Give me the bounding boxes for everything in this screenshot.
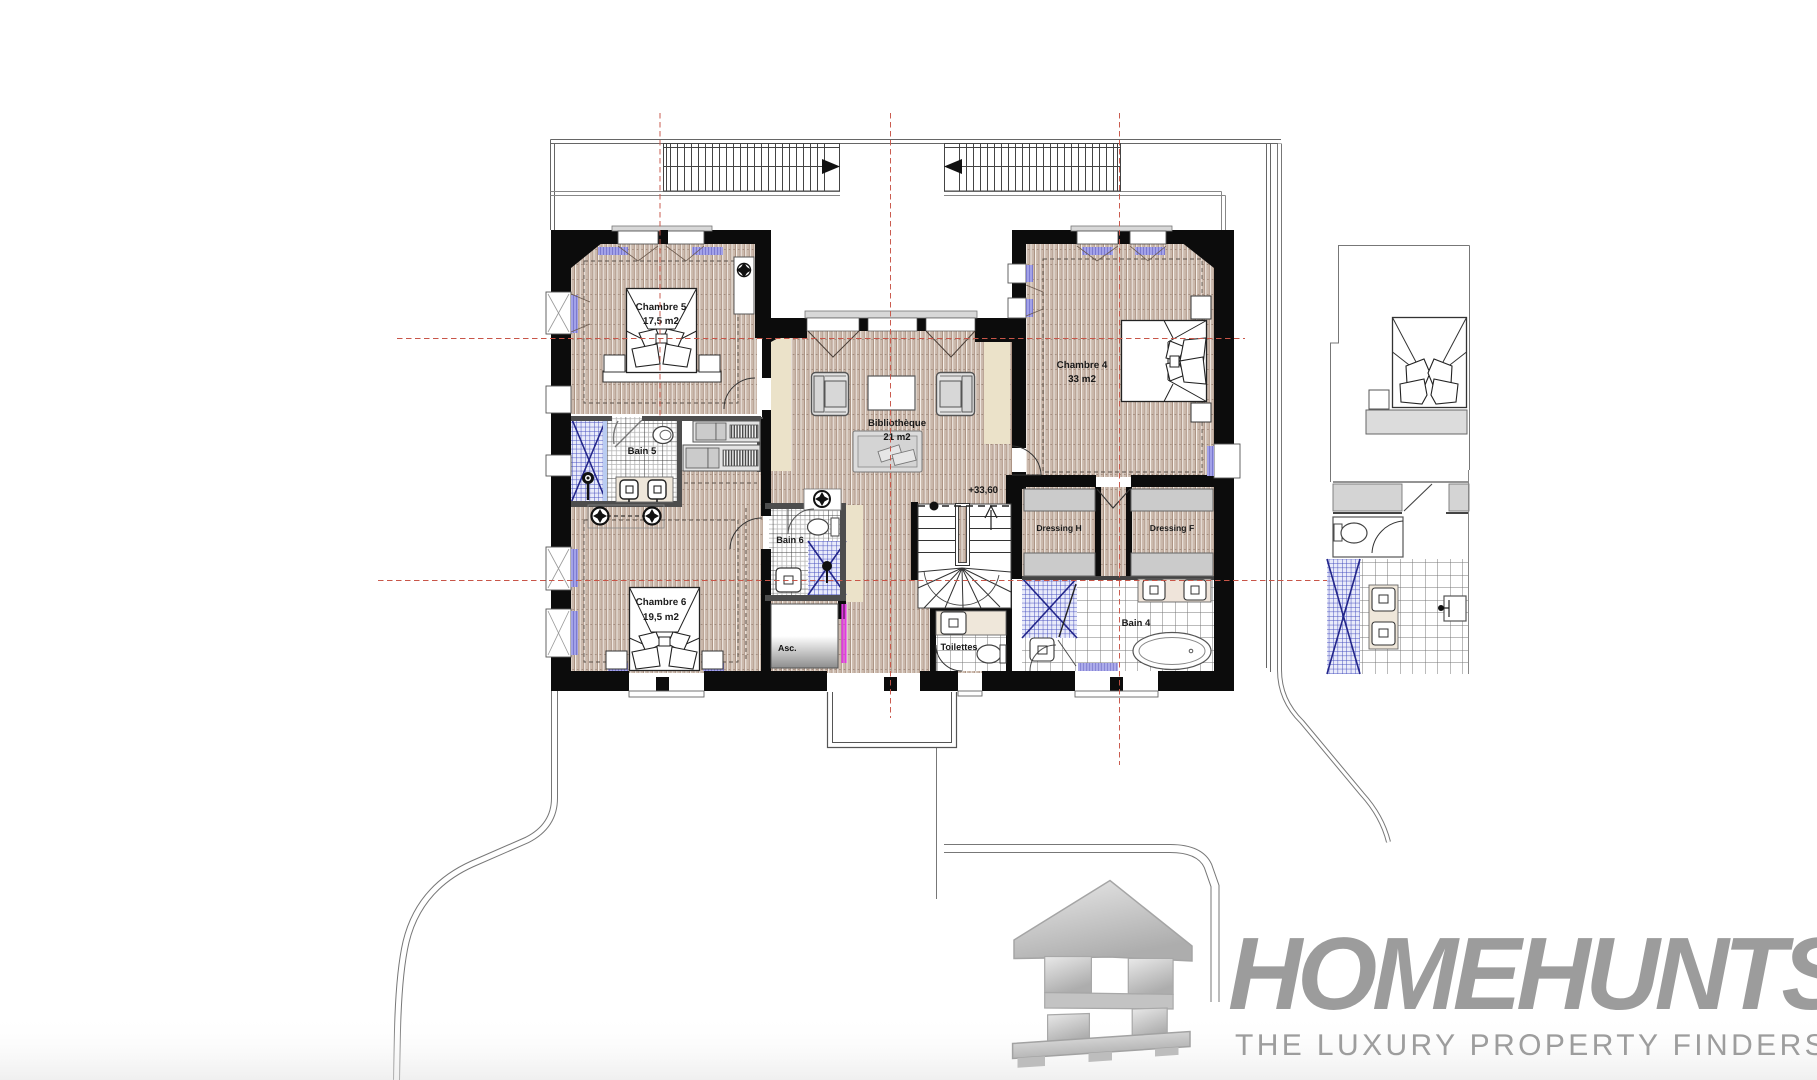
svg-text:Dressing H: Dressing H [1036,523,1081,533]
svg-text:Chambre 4: Chambre 4 [1057,360,1108,371]
svg-text:Bain 4: Bain 4 [1122,618,1151,629]
svg-text:Dressing F: Dressing F [1150,523,1194,533]
svg-text:Asc.: Asc. [778,643,797,653]
svg-text:Toilettes: Toilettes [940,642,977,652]
svg-text:17,5 m2: 17,5 m2 [643,316,680,327]
svg-text:Chambre 6: Chambre 6 [636,597,687,608]
svg-text:Bain 5: Bain 5 [628,446,657,457]
svg-text:THE LUXURY PROPERTY FINDERS: THE LUXURY PROPERTY FINDERS [1235,1029,1817,1062]
svg-text:Chambre 5: Chambre 5 [636,302,687,313]
svg-text:Bibliothèque: Bibliothèque [868,418,926,429]
svg-text:Bain 6: Bain 6 [776,535,804,545]
svg-text:33 m2: 33 m2 [1068,374,1096,385]
svg-text:21 m2: 21 m2 [883,432,910,443]
svg-text:+33,60: +33,60 [968,485,998,496]
svg-text:19,5 m2: 19,5 m2 [643,612,680,623]
svg-text:HOMEHUNTS: HOMEHUNTS [1228,916,1817,1031]
